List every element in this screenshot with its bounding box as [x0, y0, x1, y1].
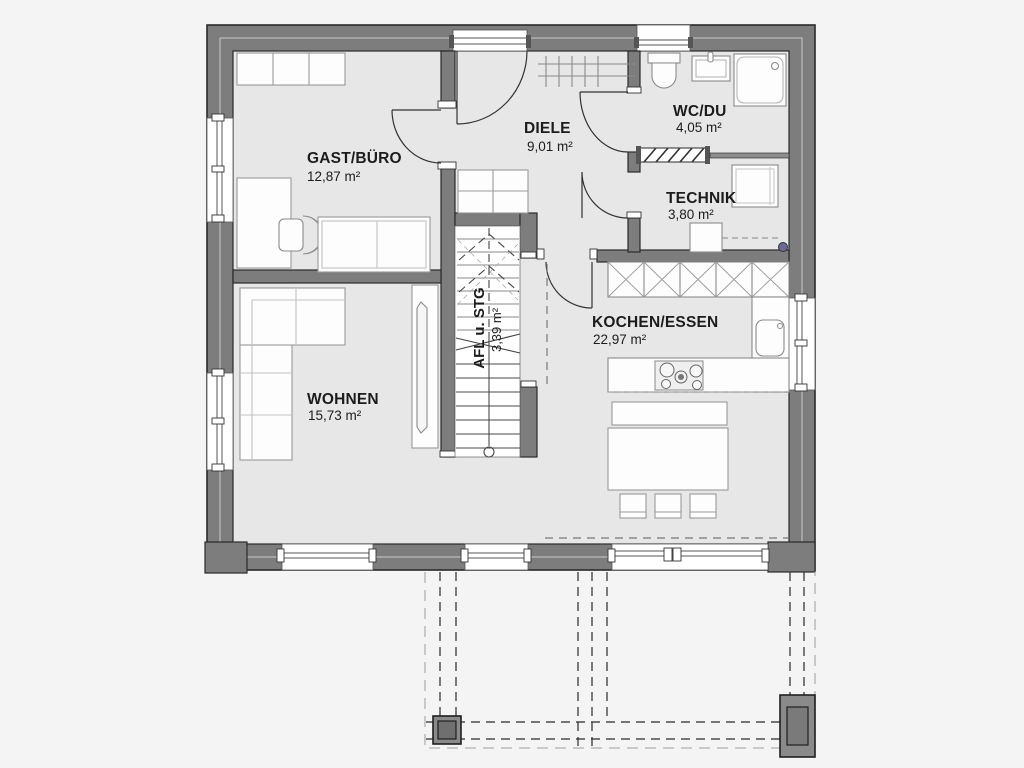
wc-window [634, 25, 693, 51]
room-area-technik: 3,80 m² [668, 207, 714, 222]
stair-label: AFL u. STG [471, 287, 488, 368]
room-label-wc: WC/DU [673, 103, 727, 120]
boiler [732, 165, 778, 207]
faucet [708, 52, 713, 62]
appliance [690, 223, 722, 252]
terrace [425, 572, 815, 757]
hall-dresser [458, 170, 528, 213]
room-label-gast: GAST/BÜRO [307, 150, 402, 167]
bench [612, 402, 727, 425]
floor-plan: GAST/BÜRO 12,87 m² DIELE 9,01 m² WC/DU 4… [0, 0, 1024, 768]
room-area-wohnen: 15,73 m² [308, 408, 362, 423]
kitchen-window [789, 294, 815, 391]
room-area-gast: 12,87 m² [307, 169, 361, 184]
tall-cabinets [608, 262, 789, 297]
entry-door [449, 30, 531, 51]
bottom-window-1 [277, 544, 376, 570]
bottom-window-2 [461, 544, 531, 570]
tv [417, 302, 427, 433]
floor-plan-page: GAST/BÜRO 12,87 m² DIELE 9,01 m² WC/DU 4… [0, 0, 1024, 768]
wohnen-window [207, 369, 233, 471]
toilet-bowl [652, 63, 676, 88]
kitchen-sink [756, 320, 784, 356]
terrace-door [608, 544, 769, 570]
room-area-kochen: 22,97 m² [593, 332, 647, 347]
cooktop [655, 361, 703, 390]
room-area-diele: 9,01 m² [527, 139, 573, 154]
marker-dot [779, 243, 788, 252]
sofa-seat [240, 288, 345, 345]
room-label-wohnen: WOHNEN [307, 391, 379, 408]
desk-chair [279, 219, 303, 251]
shower [734, 54, 786, 106]
gast-window [207, 114, 233, 222]
room-label-diele: DIELE [524, 120, 571, 137]
corner-block [768, 542, 815, 572]
chairs [620, 494, 716, 518]
corner-block [205, 542, 247, 573]
room-label-kochen: KOCHEN/ESSEN [592, 314, 718, 331]
dining-table [608, 428, 728, 490]
toilet-cistern [648, 53, 680, 63]
bed [318, 217, 430, 272]
stair-area: 3,39 m² [489, 307, 504, 352]
room-area-wc: 4,05 m² [676, 120, 722, 135]
room-label-technik: TECHNIK [666, 190, 737, 207]
shelf [237, 53, 345, 85]
